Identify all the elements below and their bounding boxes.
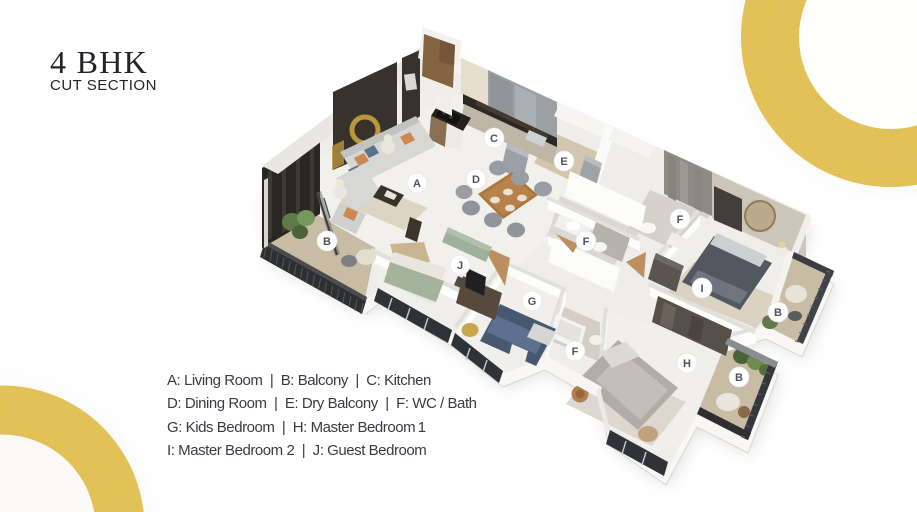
svg-text:G: G (528, 296, 537, 308)
svg-text:H: H (683, 358, 691, 370)
svg-text:F: F (583, 236, 590, 248)
svg-text:E: E (560, 156, 567, 168)
svg-text:D: D (472, 174, 480, 186)
svg-text:F: F (572, 346, 579, 358)
svg-text:F: F (677, 214, 684, 226)
svg-text:C: C (490, 133, 498, 145)
svg-text:B: B (774, 307, 782, 319)
svg-text:B: B (735, 372, 743, 384)
svg-text:B: B (323, 236, 331, 248)
svg-text:J: J (457, 260, 463, 272)
svg-text:A: A (413, 178, 421, 190)
svg-text:I: I (700, 283, 703, 295)
